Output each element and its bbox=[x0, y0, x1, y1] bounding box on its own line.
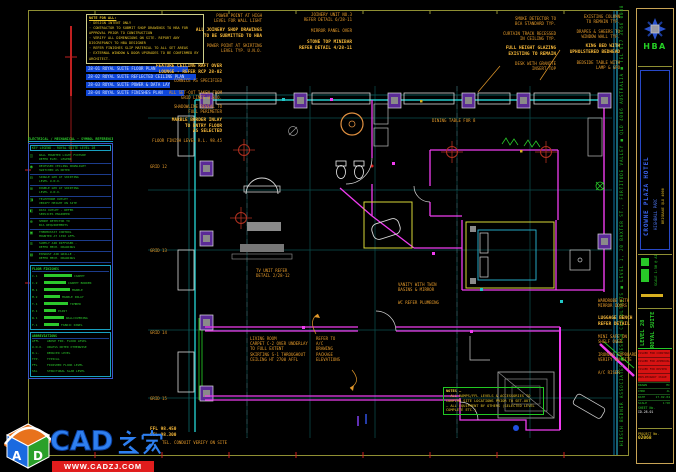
scale-block-1 bbox=[641, 258, 649, 266]
sheet-number: ID-28.01 bbox=[638, 410, 670, 414]
watermark-wordmark: CAD bbox=[50, 426, 164, 457]
legend-symbol-icon: ◉ bbox=[30, 165, 37, 173]
finish-name: PAINT bbox=[58, 309, 67, 313]
minibar-joinery bbox=[374, 104, 388, 124]
plan-notes-box: NOTES – – ALL RAMPS/FFL LEVELS & ACCESSO… bbox=[443, 387, 544, 415]
legend-row-text: SINGLE GPO AT SKIRTING LEVEL U.N.O. bbox=[39, 176, 79, 184]
plan-annotation: BEDSIDE TABLE WITH LAMP & GPO bbox=[577, 60, 620, 70]
legend-symbol-icon: ≋ bbox=[30, 242, 37, 250]
legend-row: ⊞DOUBLE GPO AT SKIRTING LEVEL U.N.O. bbox=[30, 186, 111, 197]
finish-code: P-1 bbox=[32, 309, 42, 313]
plan-annotation: TEL. CONDUIT VERIFY ON SITE bbox=[162, 440, 227, 445]
info-value: 17.02.04 bbox=[656, 395, 670, 400]
exterior-walls bbox=[178, 93, 606, 432]
info-label: DRAWN bbox=[638, 383, 647, 388]
plan-annotation: REFER TO A/C DRAWING PACKAGE ELEVATIONS bbox=[316, 336, 340, 362]
wordmark-latin: CAD bbox=[50, 426, 113, 457]
info-value: MC bbox=[666, 383, 670, 388]
finish-name: MARBLE bbox=[72, 288, 83, 292]
plan-annotation: FLOOR FINISH LEVEL R.L. 98.45 bbox=[152, 138, 222, 143]
legend-row-text: DATA OUTLET - REFER SERVICES ENGINEER bbox=[39, 209, 73, 217]
legend-subtitle: KEY LEGEND - ROYAL SUITE LEVEL 28 bbox=[30, 145, 111, 151]
bathroom-fixtures bbox=[336, 161, 374, 179]
plan-annotation: ALL JOINERY SHOP DRAWINGS TO BE SUBMITTE… bbox=[196, 28, 262, 39]
plan-annotation: SHADOWLINE REVEAL TO FULL PERIMETER bbox=[174, 104, 222, 114]
plan-annotation: POWER POINT AT SKIRTING LEVEL TYP. U.N.O… bbox=[207, 43, 262, 53]
sofa-back bbox=[244, 186, 280, 192]
coffee-table bbox=[247, 222, 281, 231]
legend-symbol-icon: ◧ bbox=[30, 209, 37, 217]
finish-swatch bbox=[44, 309, 56, 312]
plan-annotation: CURTAIN TRACK RECESSED IN CEILING TYP. bbox=[503, 31, 556, 41]
plan-annotation: TV UNIT REFER DETAIL 2/28-12 bbox=[256, 268, 290, 278]
plan-annotation: GRID 14 bbox=[150, 330, 167, 335]
legend-abbreviations: ABBREVIATIONS AFFLABOVE FIN. FLOOR LEVEL… bbox=[30, 332, 111, 377]
legend-symbol-icon: ⊞ bbox=[30, 187, 37, 195]
revision-row: PRELIMINARY ISSUE bbox=[638, 374, 670, 382]
bedroom-outlines bbox=[364, 202, 554, 288]
abbr-name: STRUCTURAL SLAB LEVEL bbox=[47, 369, 85, 375]
hanzi-zhi-glyph bbox=[115, 429, 139, 457]
finish-code: T-1 bbox=[32, 302, 42, 306]
service-symbols bbox=[282, 98, 563, 431]
revision-row: ISSUED FOR APPROVAL bbox=[638, 358, 670, 366]
plan-annotation: LIVING ROOM CARPET C-2 OVER UNDERLAY TO … bbox=[250, 336, 308, 362]
legend-row: ◨TELEPHONE OUTLET - VERIFY HEIGHT ON SIT… bbox=[30, 197, 111, 208]
legend-row: ▣THERMOSTAT CONTROL MOUNTED AT 1350 AFFL bbox=[30, 230, 111, 241]
ceiling-targets bbox=[230, 139, 557, 229]
consultant-strip: HIRSCH BEDNER ASSOCIATES ■ DESIGN CONSUL… bbox=[619, 5, 624, 446]
cad-sheet: NOTE FOR ALL: · DESIGN INTENT ONLY· CONT… bbox=[0, 0, 676, 472]
finish-name: CARPET bbox=[74, 274, 85, 278]
hba-logo-text: HBA bbox=[636, 42, 674, 51]
info-label: DATE bbox=[638, 395, 645, 400]
finish-swatch bbox=[44, 316, 64, 319]
legend-row-text: THERMOSTAT CONTROL MOUNTED AT 1350 AFFL bbox=[39, 231, 75, 239]
plan-annotation: EXISTING COLUMN TO REMAIN TYP. bbox=[584, 14, 620, 24]
legend-row: ≋SUPPLY AIR DIFFUSER - REFER MECH. DRAWI… bbox=[30, 241, 111, 252]
drawing-index-item: 28-03 ROYAL SUITE POWER & DATA LAYOUT bbox=[86, 82, 170, 88]
legend-row-text: SMOKE DETECTOR TO BCA REQUIREMENTS bbox=[39, 220, 70, 228]
level-label: LEVEL 28 bbox=[640, 320, 646, 347]
legend-row: ◉RECESSED CEILING DOWNLIGHT SWITCHED AS … bbox=[30, 164, 111, 175]
legend-row-text: SUPPLY AIR DIFFUSER - REFER MECH. DRAWIN… bbox=[39, 242, 77, 250]
terrace-bench bbox=[572, 393, 606, 419]
plan-annotation: DRAPES & SHEERS TO WINDOW WALL TYP. bbox=[577, 29, 620, 39]
wall-joinery bbox=[588, 118, 602, 156]
finish-swatch bbox=[44, 274, 72, 277]
general-notes-box: NOTE FOR ALL: · DESIGN INTENT ONLY· CONT… bbox=[86, 14, 204, 64]
legend-row: ⊟SINGLE GPO AT SKIRTING LEVEL U.N.O. bbox=[30, 175, 111, 186]
plan-annotation: WC REFER PLUMBING bbox=[398, 300, 439, 305]
finish-row: P-1PAINT bbox=[32, 307, 109, 314]
watermark-url-banner: WWW.CADZJ.COM bbox=[52, 461, 154, 472]
info-rows: DRAWNMCCHKDJLDATE17.02.04SCALE1:50 bbox=[638, 382, 670, 406]
finish-row: M-2MARBLE INLAY bbox=[32, 293, 109, 300]
legend-row: ⊚SMOKE DETECTOR TO BCA REQUIREMENTS bbox=[30, 219, 111, 230]
finish-code: F-1 bbox=[32, 323, 42, 327]
finish-swatch bbox=[44, 288, 70, 291]
legend-row: ◫WALL MOUNTED LIGHT FIXTURE REFER ELEC. … bbox=[30, 153, 111, 164]
finish-code: M-2 bbox=[32, 295, 42, 299]
legend-row-text: TELEPHONE OUTLET - VERIFY HEIGHT ON SITE bbox=[39, 198, 77, 206]
project-number: 02068 bbox=[638, 436, 670, 442]
plan-annotation: GRID 12 bbox=[150, 164, 167, 169]
finish-code: M-1 bbox=[32, 288, 42, 292]
suite-label: ROYAL SUITE bbox=[650, 312, 656, 348]
legend-symbol-icon: ⊟ bbox=[30, 176, 37, 184]
plan-notes-body: – ALL RAMPS/FFL LEVELS & ACCESSORIES TOC… bbox=[446, 394, 541, 413]
finish-row: W-1WALLCOVERING bbox=[32, 314, 109, 321]
round-dining-table bbox=[341, 113, 363, 135]
legend-symbol-icon: ▤ bbox=[30, 253, 37, 261]
plan-annotation: GRID 13 bbox=[150, 248, 167, 253]
plan-annotation: MINI SAFE ON SHELF OVER bbox=[598, 334, 627, 344]
plan-annotation: GRID 15 bbox=[150, 396, 167, 401]
info-value: JL bbox=[666, 389, 670, 394]
finish-code: C-2 bbox=[32, 281, 42, 285]
plan-annotation: IRONING CUPBOARD VERIFY ON SITE bbox=[598, 352, 637, 362]
finish-name: MARBLE INLAY bbox=[62, 295, 84, 299]
title-block: HBA CROWNE PLAZA HOTEL HIGHBALL PARC BRI… bbox=[636, 8, 674, 464]
plan-annotation: MIRROR PANEL OVER bbox=[311, 28, 352, 33]
plan-annotation: MARBLE BORDER INLAY TO ENTRY FLOOR AS SE… bbox=[172, 118, 222, 135]
wc-fixture bbox=[337, 166, 346, 179]
plan-annotation: STONE TOP MINIBAR REFER DETAIL 4/28-11 bbox=[299, 40, 352, 51]
scale-bar bbox=[641, 294, 663, 297]
plan-annotation: POWER POINT AT HIGH LEVEL FOR WALL LIGHT bbox=[214, 13, 262, 23]
plan-note-line: – ALL RAMPS/FFL LEVELS & ACCESSORIES TO bbox=[446, 394, 541, 399]
plan-annotation: ALL SET-OUT TAKEN FROM GRID LINES U.N.O. bbox=[169, 90, 222, 100]
legend-row: ◧DATA OUTLET - REFER SERVICES ENGINEER bbox=[30, 208, 111, 219]
finish-swatch bbox=[44, 295, 60, 298]
bidet-fixture bbox=[355, 166, 364, 179]
legend-symbol-icon: ▣ bbox=[30, 231, 37, 239]
plan-annotation: VANITY WITH TWIN BASINS & MIRROR bbox=[398, 282, 437, 292]
finish-row: C-2CARPET BORDER bbox=[32, 279, 109, 286]
legend-title: ELECTRICAL / MECHANICAL - SYMBOL REFEREN… bbox=[28, 137, 113, 142]
info-label: CHKD bbox=[638, 389, 645, 394]
abbr-row: SSLSTRUCTURAL SLAB LEVEL bbox=[32, 369, 109, 375]
reference-dot bbox=[513, 425, 519, 431]
legend-panel: ELECTRICAL / MECHANICAL - SYMBOL REFEREN… bbox=[28, 137, 113, 379]
finish-row: T-1TIMBER bbox=[32, 300, 109, 307]
finish-row: M-1MARBLE bbox=[32, 286, 109, 293]
legend-row-text: RECESSED CEILING DOWNLIGHT SWITCHED AS N… bbox=[39, 165, 86, 173]
plan-note-line: CONFIRM SITE LOCATIONS PRIOR TO SET-OUT bbox=[446, 399, 541, 404]
legend-finishes: FLOOR FINISHES C-1CARPETC-2CARPET BORDER… bbox=[30, 265, 111, 330]
plants bbox=[502, 138, 604, 190]
cube-letter-d: D bbox=[33, 449, 43, 463]
scale-block-2 bbox=[641, 269, 649, 282]
general-notes-body: · DESIGN INTENT ONLY· CONTRACTOR TO SUBM… bbox=[89, 21, 201, 62]
finish-name: CARPET BORDER bbox=[68, 281, 91, 285]
tv-unit bbox=[240, 244, 284, 252]
watermark: A D CAD WWW.CADZJ.COM bbox=[4, 420, 164, 472]
plan-annotation: WARDROBE WITH MIRROR DOORS bbox=[598, 298, 629, 308]
legend-symbol-icon: ⊚ bbox=[30, 220, 37, 228]
project-address: BRISBANE QLD 4000 bbox=[661, 188, 665, 224]
hba-logo-icon bbox=[644, 18, 666, 40]
finish-swatch bbox=[44, 281, 66, 284]
revision-table: ISSUED FOR CONSTRUCTIONISSUED FOR APPROV… bbox=[638, 350, 670, 382]
finish-row: F-1FABRIC PANEL bbox=[32, 321, 109, 328]
legend-row: ▤EXHAUST AIR GRILLE - REFER MECH. DRAWIN… bbox=[30, 252, 111, 263]
plan-annotation: DINING TABLE FOR 8 bbox=[432, 118, 475, 123]
general-note-line: · VERIFY ALL DIMENSIONS ON SITE. REPORT … bbox=[89, 36, 201, 46]
finish-name: WALLCOVERING bbox=[66, 316, 88, 320]
plan-annotation: KING BED WITH UPHOLSTERED BEDHEAD bbox=[570, 44, 620, 55]
legend-row-text: DOUBLE GPO AT SKIRTING LEVEL U.N.O. bbox=[39, 187, 79, 195]
plan-annotation: SMOKE DETECTOR TO BCA STANDARD TYP. bbox=[515, 16, 556, 26]
hanzi-jia-glyph bbox=[140, 429, 164, 457]
revision-row: ISSUED FOR REVIEW bbox=[638, 366, 670, 374]
plan-annotation: DESK WITH GRANITE INSERT TOP bbox=[515, 61, 556, 71]
legend-row-text: EXHAUST AIR GRILLE - REFER MECH. DRAWING… bbox=[39, 253, 75, 261]
finish-code: W-1 bbox=[32, 316, 42, 320]
legend-box: KEY LEGEND - ROYAL SUITE LEVEL 28 ◫WALL … bbox=[28, 143, 113, 379]
general-note-line: · CONTRACTOR TO SUBMIT SHOP DRAWINGS TO … bbox=[89, 26, 201, 36]
finish-row: C-1CARPET bbox=[32, 272, 109, 279]
project-name: HIGHBALL PARC bbox=[653, 199, 658, 230]
plan-annotation: FULL HEIGHT GLAZING EXISTING TO REMAIN bbox=[506, 46, 556, 57]
legend-symbol-icon: ◨ bbox=[30, 198, 37, 206]
scale-note: SCALE 1:50 @ A1 bbox=[654, 254, 658, 286]
project-number-row: PROJECT No. 02068 bbox=[638, 432, 670, 443]
legend-symbol-icon: ◫ bbox=[30, 154, 37, 162]
cadzj-cube-icon: A D bbox=[4, 422, 52, 470]
finish-swatch bbox=[44, 323, 59, 326]
sheet-number-row: SHEET No. ID-28.01 bbox=[638, 406, 670, 415]
plan-annotation: LUGGAGE BENCH REFER DETAIL bbox=[598, 316, 632, 327]
shower bbox=[570, 250, 590, 270]
legend-row-text: WALL MOUNTED LIGHT FIXTURE REFER ELEC. L… bbox=[39, 154, 86, 162]
abbr-code: SSL bbox=[32, 369, 44, 375]
plan-annotation: A/C RISER bbox=[598, 370, 620, 375]
plan-annotation: FEATURE CEILING RAFT OVER LOUNGE - REFER… bbox=[156, 64, 222, 75]
king-bed bbox=[478, 230, 536, 280]
client-name: CROWNE PLAZA HOTEL bbox=[643, 157, 650, 236]
finish-name: FABRIC PANEL bbox=[61, 323, 83, 327]
finish-code: C-1 bbox=[32, 274, 42, 278]
plan-note-line: COMPLETE ETC.) bbox=[446, 408, 541, 413]
general-note-line: · EXTERNAL WINDOW & DOOR UPGRADES TO BE … bbox=[89, 51, 201, 61]
finish-name: TIMBER bbox=[70, 302, 81, 306]
plan-annotation: CORNICE AS SPECIFIED bbox=[174, 78, 222, 83]
plan-annotation: JOINERY UNIT NO.3 REFER DETAIL 6/28-11 bbox=[304, 12, 352, 22]
finish-swatch bbox=[44, 302, 68, 305]
revision-row: ISSUED FOR CONSTRUCTION bbox=[638, 350, 670, 358]
cube-letter-a: A bbox=[12, 449, 22, 463]
